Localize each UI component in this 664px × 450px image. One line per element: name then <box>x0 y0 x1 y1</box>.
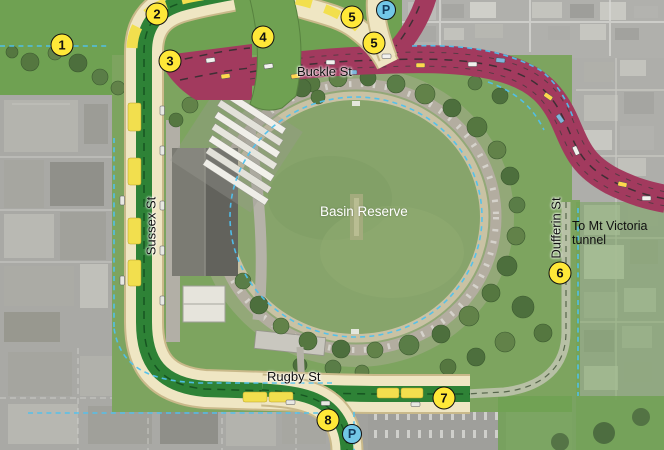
route-marker-2: 2 <box>146 3 169 26</box>
route-marker-1: 1 <box>51 34 74 57</box>
route-marker-4: 4 <box>252 26 275 49</box>
mt-victoria-label: To Mt Victoria tunnel <box>572 219 656 247</box>
parking-marker: P <box>376 0 396 20</box>
parking-marker: P <box>342 424 362 444</box>
basin-reserve-label: Basin Reserve <box>320 204 408 219</box>
route-marker-3: 3 <box>159 50 182 73</box>
rugby-st-label: Rugby St <box>267 370 320 385</box>
route-marker-8: 8 <box>317 409 340 432</box>
route-marker-7: 7 <box>433 387 456 410</box>
sussex-st-label: Sussex St <box>145 197 160 256</box>
route-marker-5: 5 <box>341 6 364 29</box>
route-marker-5: 5 <box>363 32 386 55</box>
annotation-overlay: 123455678PPBuckle StSussex StDufferin St… <box>0 0 664 450</box>
basin-reserve-map: 123455678PPBuckle StSussex StDufferin St… <box>0 0 664 450</box>
route-marker-6: 6 <box>549 262 572 285</box>
dufferin-st-label: Dufferin St <box>550 197 565 258</box>
buckle-st-label: Buckle St <box>297 65 352 80</box>
